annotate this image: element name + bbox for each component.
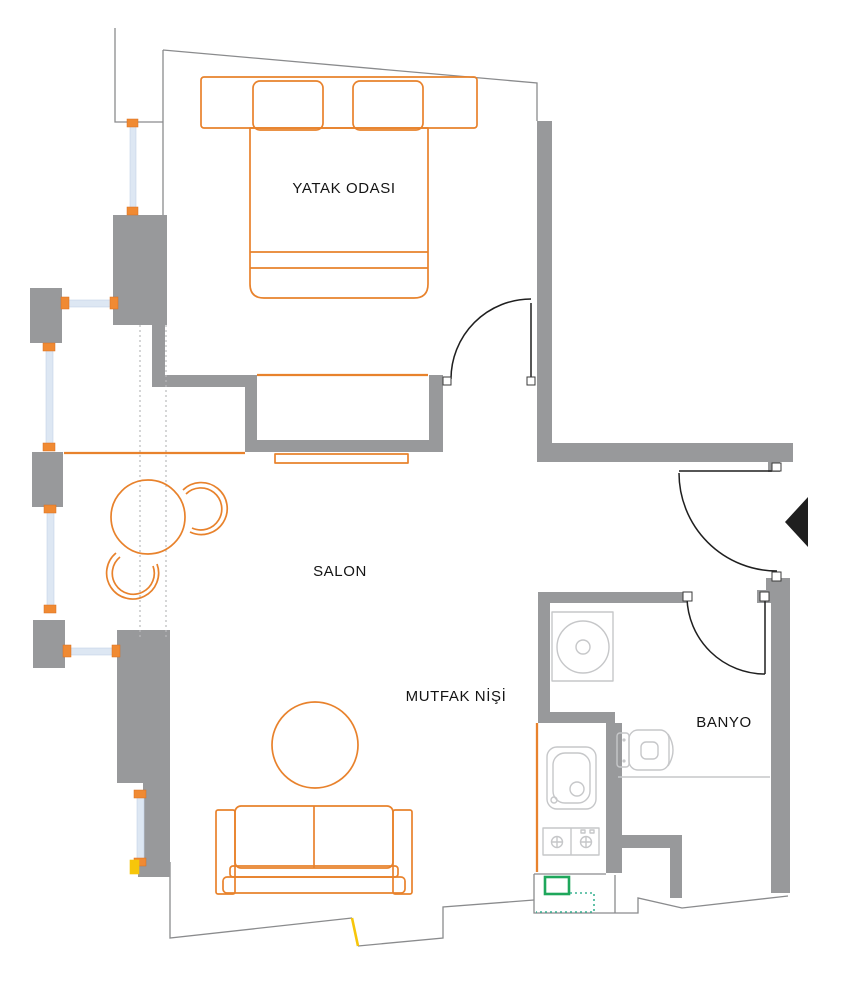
window-cap	[43, 443, 55, 451]
dining-chair	[183, 483, 227, 535]
window-bedroom-west	[130, 126, 136, 210]
wall-stub-below-pillar	[152, 325, 165, 378]
sink-outer	[547, 747, 596, 809]
door-jamb	[760, 592, 769, 601]
wall-bedroom-right	[537, 121, 552, 443]
wall-bath-top	[538, 592, 688, 603]
slab-edge-yellow-mark	[352, 918, 358, 946]
label-bedroom: YATAK ODASI	[292, 180, 395, 197]
entrance-door	[679, 463, 781, 581]
wall-kitchen-left	[538, 592, 550, 723]
floor-plan-drawing: YATAK ODASI SALON MUTFAK NİŞİ BANYO	[0, 0, 857, 1000]
toilet-bowl	[629, 730, 669, 770]
floor-plan: YATAK ODASI SALON MUTFAK NİŞİ BANYO	[0, 0, 857, 1000]
window-salon-southwest	[137, 797, 144, 860]
label-living-room: SALON	[313, 563, 367, 580]
wall-pillar-west-2	[32, 452, 63, 507]
wall-bath-lower-vert	[670, 848, 682, 898]
window-salon-west-1	[46, 350, 53, 445]
sink-basin	[553, 753, 590, 803]
door-jamb	[443, 377, 451, 385]
bed-headboard	[201, 77, 477, 128]
wall-pillar-bedroom-left	[113, 215, 167, 325]
walls	[30, 121, 793, 898]
toilet-seat	[641, 742, 658, 759]
washing-machine-hub	[576, 640, 590, 654]
window-cap	[44, 505, 56, 513]
wall-pillar-west-1	[30, 288, 62, 343]
wall-niche-bottom	[245, 440, 443, 452]
door-jamb	[772, 463, 781, 471]
toilet-bolt	[622, 759, 625, 762]
wall-yellow-mark	[131, 861, 138, 873]
wall-hall-top	[537, 443, 793, 462]
window-cap	[63, 645, 71, 657]
double-bed	[250, 128, 428, 298]
wall-salon-west-lower	[143, 783, 170, 862]
boundary-kitchen-bottom	[534, 874, 788, 913]
sink-drain	[570, 782, 584, 796]
drain-route-dotted	[536, 893, 594, 912]
chair-arc-outer	[107, 553, 159, 599]
window-cap	[110, 297, 118, 309]
entrance-arrow-icon	[785, 497, 808, 547]
bathroom-door	[683, 592, 769, 674]
window-salon-west-2	[47, 512, 54, 607]
chair-arc-inner	[112, 557, 154, 594]
wall-salon-west-upper	[117, 630, 170, 783]
wall-niche-right	[429, 375, 443, 452]
window-cap	[44, 605, 56, 613]
wall-kitchen-mid	[538, 712, 615, 723]
chair-arc-inner	[186, 488, 222, 530]
kitchen-sink	[547, 747, 596, 809]
wall-bath-lower	[615, 835, 682, 848]
bed-pillow-right	[353, 81, 423, 130]
window-cap	[127, 207, 138, 215]
door-swing-arc	[679, 473, 777, 571]
toilet-bolt	[622, 738, 625, 741]
coffee-table	[272, 702, 358, 788]
washing-machine-drum	[557, 621, 609, 673]
sofa-armrest-right	[393, 810, 412, 894]
bedroom-door	[443, 299, 535, 385]
toilet	[617, 730, 673, 770]
dining-chair	[107, 553, 159, 599]
wall-kitchen-right	[606, 723, 622, 873]
door-swing-arc	[687, 598, 765, 674]
tv-unit	[275, 454, 408, 463]
wall-pillar-west-3	[33, 620, 65, 668]
door-jamb	[683, 592, 692, 601]
boundary-salon-bottom	[170, 862, 534, 946]
bed-pillow-left	[253, 81, 323, 130]
doors	[443, 299, 781, 674]
window-cap	[134, 790, 146, 798]
window-cap	[112, 645, 120, 657]
cooktop-knob	[581, 830, 585, 833]
door-swing-arc	[451, 299, 531, 379]
sofa	[216, 806, 412, 894]
cooktop	[543, 828, 599, 855]
sofa-base	[223, 877, 405, 893]
drain-marker	[545, 877, 569, 894]
window-salon-top	[67, 300, 115, 307]
window-cap	[43, 343, 55, 351]
label-kitchen-niche: MUTFAK NİŞİ	[406, 687, 507, 705]
fixtures	[543, 612, 770, 855]
door-jamb	[772, 572, 781, 581]
washing-machine	[552, 612, 613, 681]
dining-table	[111, 480, 185, 554]
washing-machine-body	[552, 612, 613, 681]
window-salon-bottom	[68, 648, 117, 655]
drain	[536, 877, 594, 912]
window-cap	[127, 119, 138, 127]
cooktop-knob	[590, 830, 594, 833]
sofa-armrest-left	[216, 810, 235, 894]
door-jamb	[527, 377, 535, 385]
window-cap	[61, 297, 69, 309]
label-bathroom: BANYO	[696, 714, 752, 731]
wall-east	[771, 578, 790, 893]
